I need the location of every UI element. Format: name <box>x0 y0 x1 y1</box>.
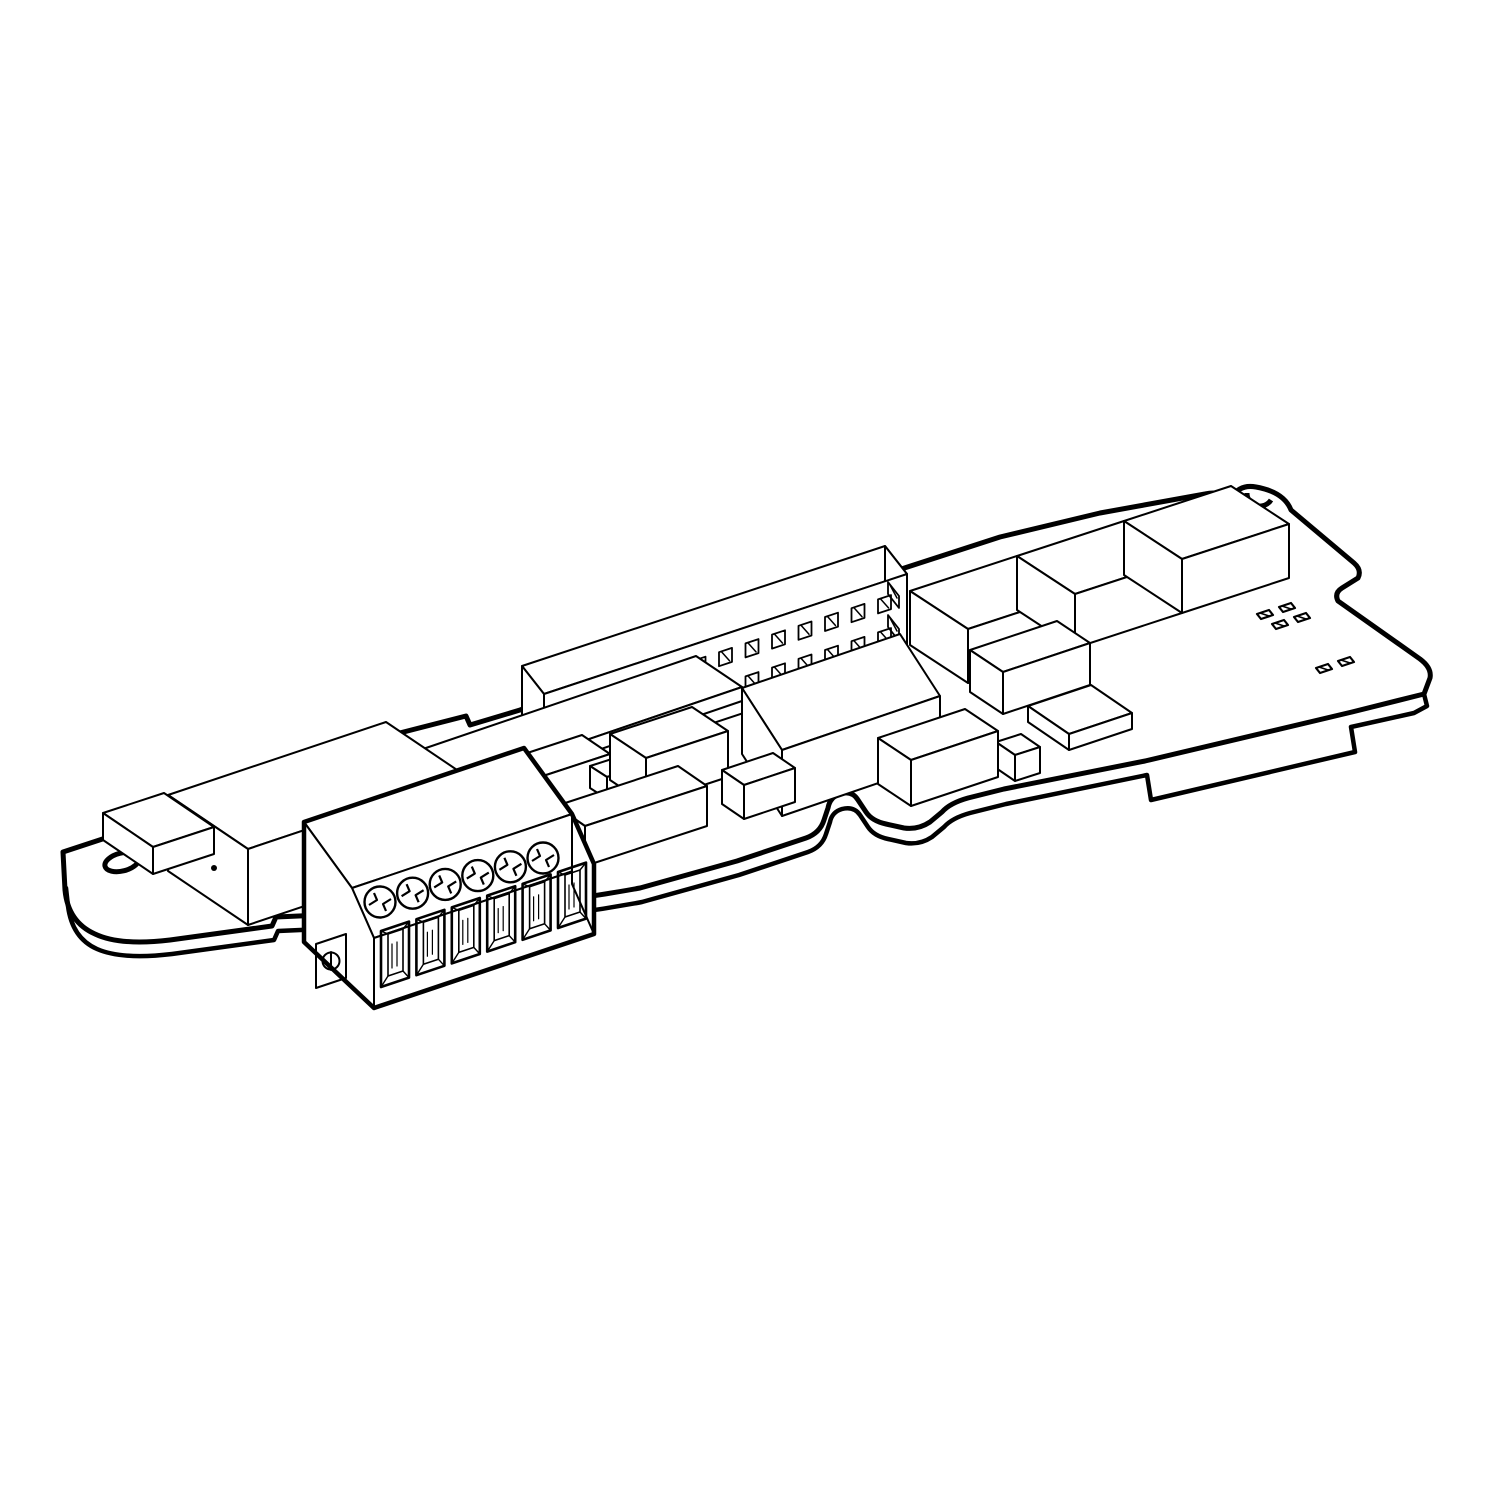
terminal-screw-icon <box>528 843 559 874</box>
pcb-illustration <box>0 0 1500 1500</box>
terminal-screw-icon <box>462 860 493 891</box>
terminal-screw-icon <box>430 869 461 900</box>
terminal-screw-icon <box>365 887 396 918</box>
terminal-screw-icon <box>495 851 526 882</box>
cover-box-dot <box>211 865 217 871</box>
terminal-screw-icon <box>397 878 428 909</box>
figure-canvas <box>0 0 1500 1500</box>
